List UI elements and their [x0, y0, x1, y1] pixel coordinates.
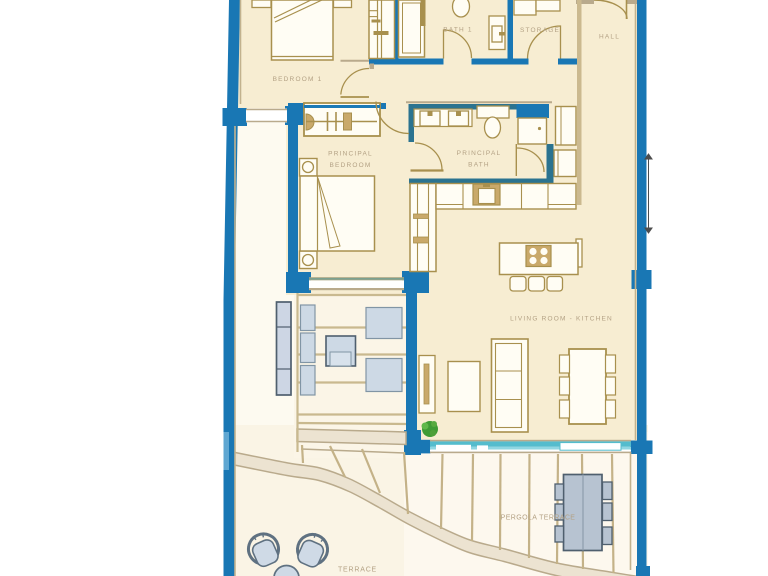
svg-text:BEDROOM 1: BEDROOM 1	[273, 76, 323, 83]
svg-text:BATH 1: BATH 1	[443, 27, 472, 34]
svg-text:STORAGE: STORAGE	[520, 27, 560, 34]
svg-text:BATH: BATH	[468, 162, 490, 169]
svg-text:BEDROOM: BEDROOM	[330, 162, 372, 169]
svg-text:LIVING ROOM - KITCHEN: LIVING ROOM - KITCHEN	[510, 316, 613, 323]
svg-text:PRINCIPAL: PRINCIPAL	[457, 150, 502, 157]
svg-text:TERRACE: TERRACE	[338, 567, 377, 574]
svg-text:PRINCIPAL: PRINCIPAL	[328, 151, 373, 158]
svg-text:HALL: HALL	[599, 34, 620, 41]
svg-text:PERGOLA TERRACE: PERGOLA TERRACE	[501, 515, 576, 522]
